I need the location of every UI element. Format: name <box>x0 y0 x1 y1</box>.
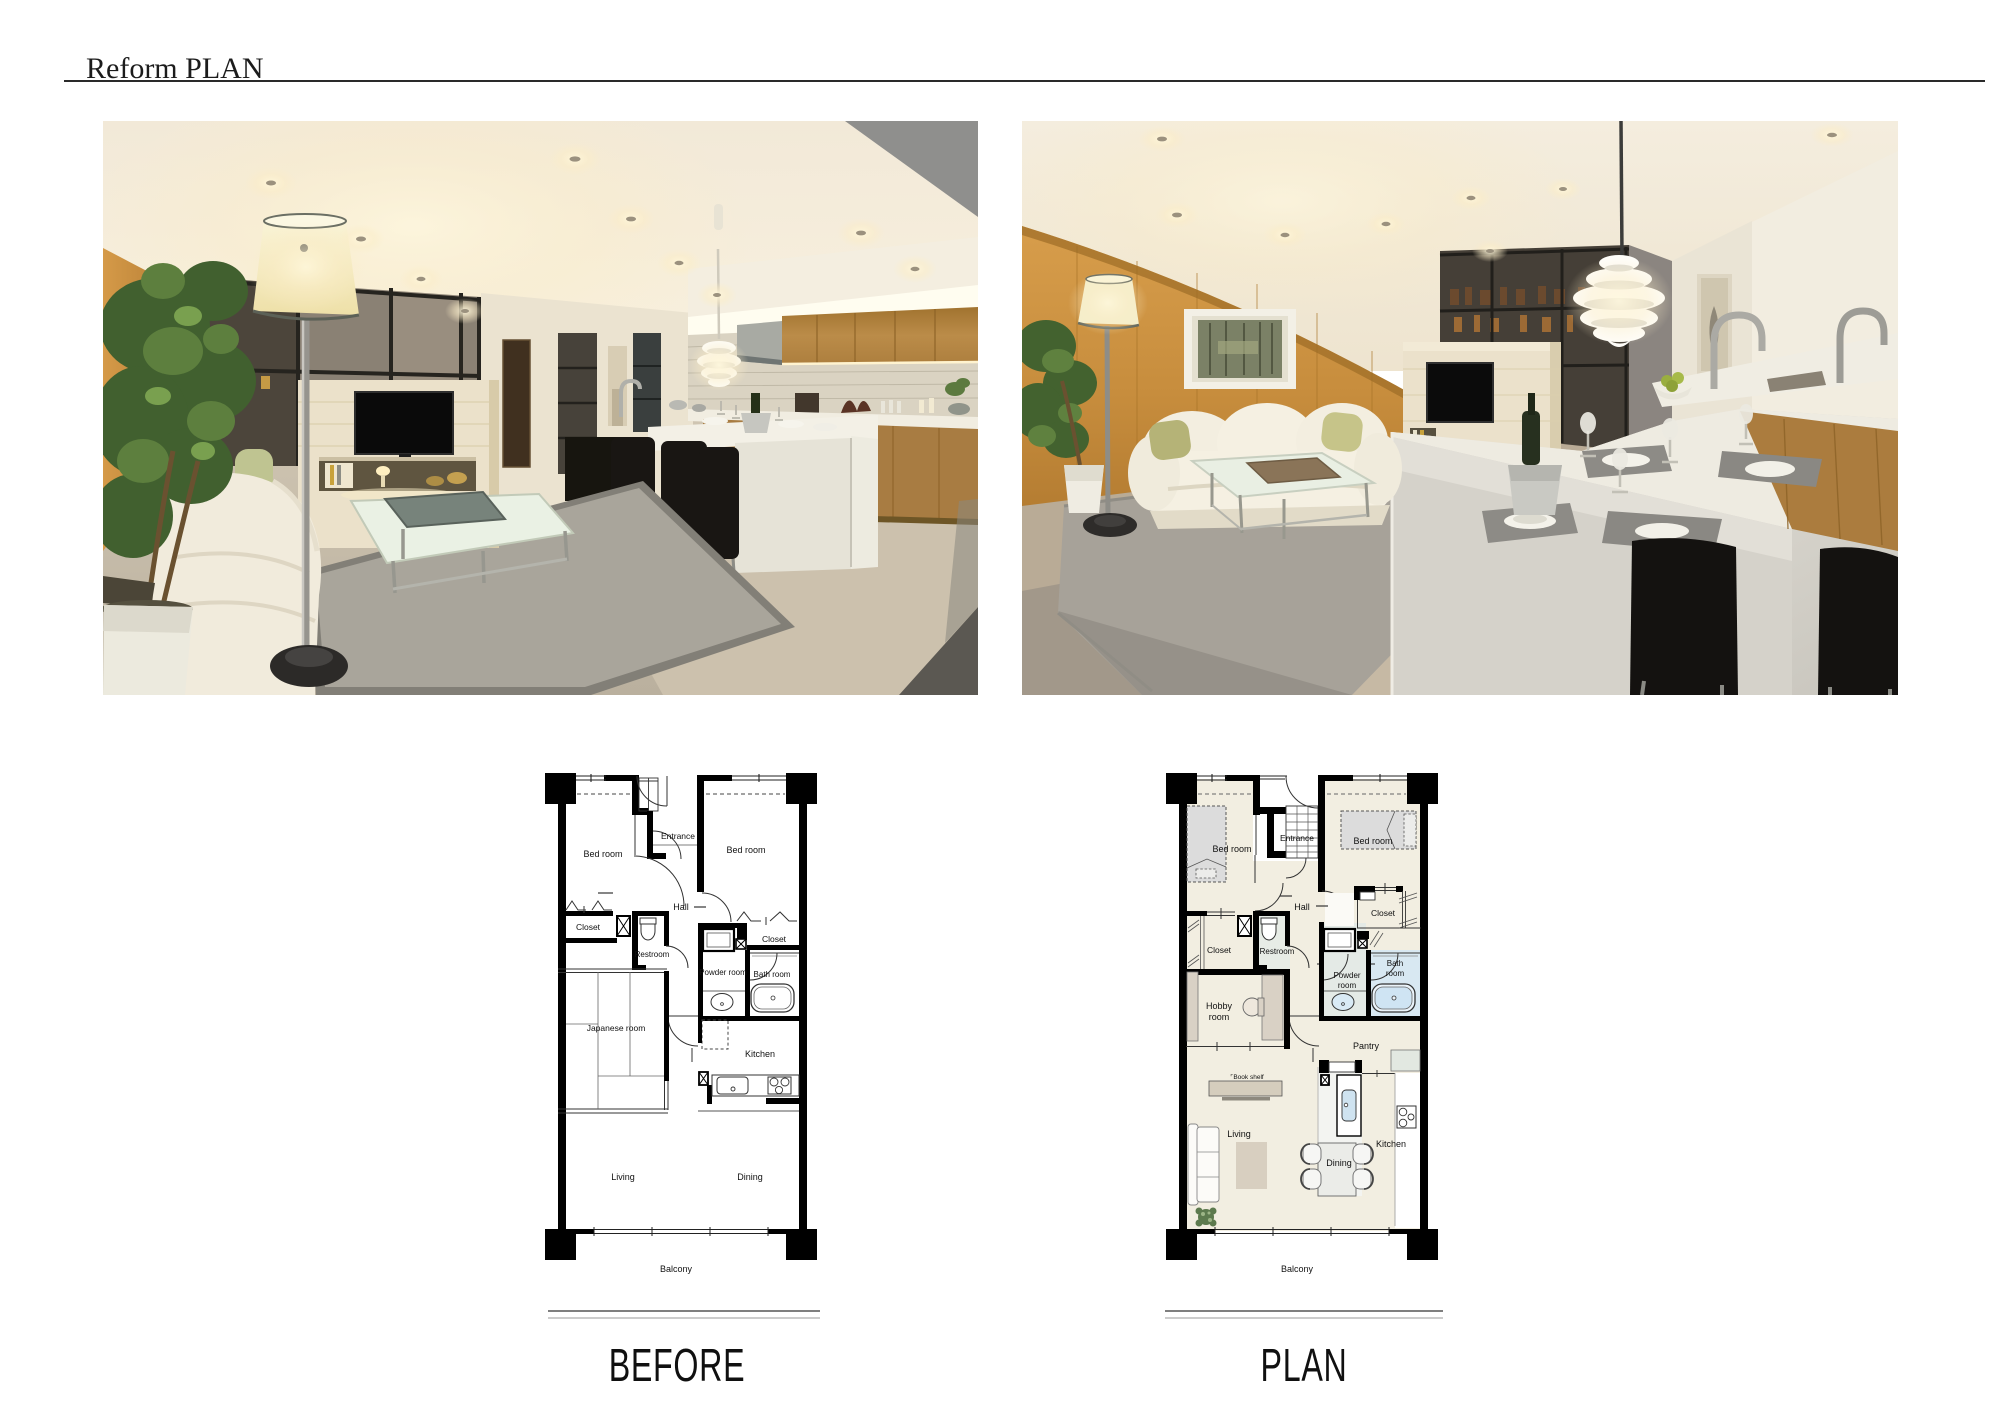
svg-text:Kitchen: Kitchen <box>1376 1139 1406 1149</box>
svg-text:Japanese room: Japanese room <box>587 1023 646 1033</box>
svg-text:Hall: Hall <box>673 902 689 912</box>
svg-text:room: room <box>1338 981 1357 990</box>
svg-text:Closet: Closet <box>762 934 787 944</box>
svg-text:Balcony: Balcony <box>660 1264 693 1274</box>
svg-text:Bed room: Bed room <box>726 845 765 855</box>
svg-text:Bath: Bath <box>1387 959 1403 968</box>
svg-text:Living: Living <box>1227 1129 1251 1139</box>
svg-text:Bed room: Bed room <box>1353 836 1392 846</box>
svg-text:room: room <box>1209 1012 1230 1022</box>
svg-text:Closet: Closet <box>1371 908 1396 918</box>
svg-text:Bed room: Bed room <box>1212 844 1251 854</box>
svg-text:Pantry: Pantry <box>1353 1041 1380 1051</box>
svg-text:Powder: Powder <box>1333 971 1360 980</box>
svg-text:Living: Living <box>611 1172 635 1182</box>
svg-text:Balcony: Balcony <box>1281 1264 1314 1274</box>
svg-text:Kitchen: Kitchen <box>745 1049 775 1059</box>
svg-text:Powder room: Powder room <box>699 968 747 977</box>
svg-text:Closet: Closet <box>1207 945 1232 955</box>
svg-text:room: room <box>1386 969 1405 978</box>
svg-text:Bath room: Bath room <box>754 970 791 979</box>
svg-text:Entrance: Entrance <box>661 831 695 841</box>
svg-text:⌜Book shelf: ⌜Book shelf <box>1230 1073 1264 1081</box>
svg-text:Entrance: Entrance <box>1280 833 1314 843</box>
svg-text:Dining: Dining <box>1326 1158 1352 1168</box>
svg-text:Restroom: Restroom <box>1260 947 1295 956</box>
svg-text:Bed room: Bed room <box>583 849 622 859</box>
svg-text:Hall: Hall <box>1294 902 1310 912</box>
svg-text:Restroom: Restroom <box>635 950 670 959</box>
svg-text:Closet: Closet <box>576 922 601 932</box>
svg-text:Hobby: Hobby <box>1206 1001 1233 1011</box>
svg-text:Dining: Dining <box>737 1172 763 1182</box>
